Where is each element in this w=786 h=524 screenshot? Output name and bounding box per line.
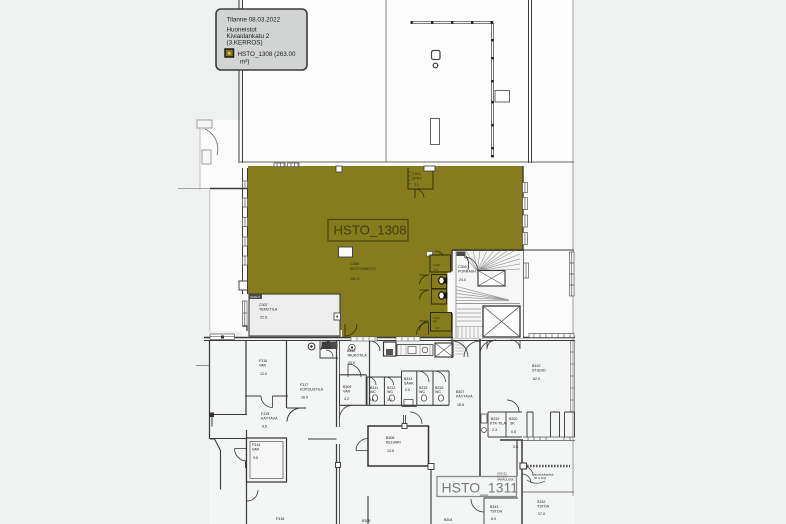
svg-text:30 m 1kpl: 30 m 1kpl: [534, 476, 547, 480]
svg-text:C309: C309: [458, 265, 467, 269]
svg-text:C313: C313: [412, 172, 421, 176]
svg-text:B304: B304: [444, 518, 452, 522]
svg-text:6.5: 6.5: [491, 517, 496, 521]
svg-text:23.0: 23.0: [348, 361, 355, 365]
svg-text:9.5: 9.5: [262, 425, 267, 429]
svg-text:0.5: 0.5: [513, 445, 518, 449]
svg-text:TSTÖH: TSTÖH: [537, 505, 550, 509]
svg-text:F314: F314: [252, 443, 260, 447]
svg-text:(3.KERROS): (3.KERROS): [227, 40, 263, 47]
svg-text:SK: SK: [510, 422, 515, 426]
svg-text:B309: B309: [343, 385, 351, 389]
svg-text:Tilanne 08.03.2022: Tilanne 08.03.2022: [227, 17, 281, 24]
svg-text:PORRASH.: PORRASH.: [458, 270, 477, 274]
svg-text:VAR: VAR: [343, 390, 351, 394]
svg-text:VAR: VAR: [259, 364, 267, 368]
svg-text:B308: B308: [386, 436, 394, 440]
svg-text:F317: F317: [300, 383, 308, 387]
svg-text:B310: B310: [532, 364, 540, 368]
svg-text:F318: F318: [276, 517, 284, 521]
svg-text:KOKOUSTILA: KOKOUSTILA: [300, 388, 324, 392]
svg-text:PE: PE: [433, 320, 437, 324]
svg-text:HSTO_1308 (263.00: HSTO_1308 (263.00: [238, 51, 296, 58]
svg-text:B312: B312: [347, 349, 355, 353]
svg-text:B319: B319: [491, 417, 499, 421]
svg-text:TAUKOTILA: TAUKOTILA: [347, 354, 367, 358]
svg-text:F316: F316: [259, 359, 267, 363]
svg-text:WC: WC: [387, 390, 393, 394]
svg-text:4.2: 4.2: [344, 397, 349, 401]
svg-text:C307: C307: [259, 303, 268, 307]
svg-text:KTK-TILA: KTK-TILA: [490, 422, 506, 426]
svg-text:62.0: 62.0: [533, 377, 540, 381]
svg-text:VARLO: VARLO: [250, 295, 261, 299]
svg-text:16.8: 16.8: [457, 403, 464, 407]
svg-text:17.0: 17.0: [538, 512, 545, 516]
svg-text:2.5: 2.5: [405, 388, 410, 392]
svg-text:TSTÖH: TSTÖH: [490, 510, 503, 514]
svg-text:C308: C308: [350, 262, 359, 266]
svg-text:m²): m²): [240, 59, 249, 66]
svg-text:WC: WC: [370, 390, 376, 394]
svg-text:4.0: 4.0: [435, 326, 440, 330]
svg-text:SÄHK: SÄHK: [404, 382, 414, 386]
svg-text:F315: F315: [261, 412, 269, 416]
svg-text:AVOTOIMISTO: AVOTOIMISTO: [350, 267, 376, 271]
svg-text:KELVARI: KELVARI: [386, 441, 401, 445]
svg-text:B343: B343: [490, 505, 498, 509]
svg-text:B305: B305: [362, 519, 370, 523]
svg-text:KÄYTÄVÄ: KÄYTÄVÄ: [456, 395, 473, 399]
svg-text:WC: WC: [419, 390, 425, 394]
svg-text:160.5: 160.5: [350, 277, 360, 281]
svg-text:S332: S332: [537, 500, 545, 504]
svg-text:STUDIO: STUDIO: [532, 369, 546, 373]
svg-text:HSTO_1308: HSTO_1308: [334, 223, 407, 238]
svg-text:KÄYTÄVÄ: KÄYTÄVÄ: [261, 417, 278, 421]
svg-text:B314: B314: [404, 377, 412, 381]
svg-text:16.0: 16.0: [301, 396, 308, 400]
svg-text:C310: C310: [433, 263, 441, 267]
svg-text:3.0: 3.0: [369, 398, 374, 402]
svg-text:1.5: 1.5: [434, 268, 438, 272]
svg-text:24.0: 24.0: [459, 278, 466, 282]
svg-text:12.0: 12.0: [260, 372, 267, 376]
svg-text:TEKN.TILA: TEKN.TILA: [259, 308, 278, 312]
svg-text:5.0: 5.0: [414, 183, 419, 187]
svg-text:3.1: 3.1: [387, 398, 392, 402]
svg-text:22.5: 22.5: [260, 316, 267, 320]
svg-text:SPKV: SPKV: [412, 177, 422, 181]
svg-text:HSTO_1311: HSTO_1311: [442, 480, 519, 496]
svg-text:9.5: 9.5: [253, 456, 258, 460]
svg-text:B320: B320: [509, 417, 517, 421]
svg-text:VAR: VAR: [252, 448, 260, 452]
svg-text:2.3: 2.3: [492, 428, 497, 432]
svg-text:WC: WC: [435, 390, 441, 394]
svg-text:B307: B307: [456, 390, 464, 394]
svg-text:SPKV: SPKV: [323, 346, 331, 350]
svg-text:0.5: 0.5: [511, 430, 516, 434]
svg-text:13.5: 13.5: [387, 449, 394, 453]
